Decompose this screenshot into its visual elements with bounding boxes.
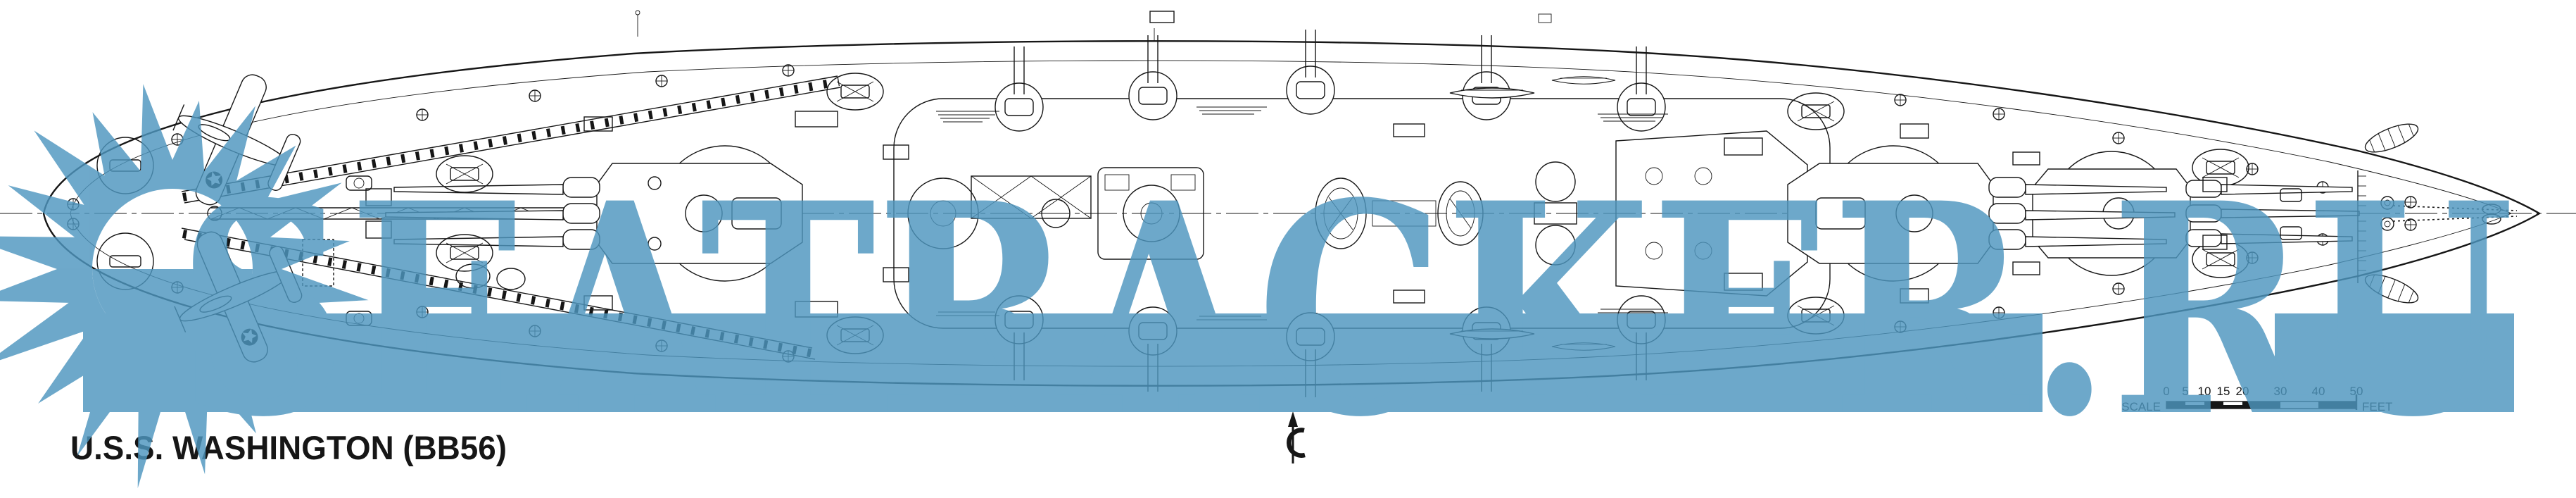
blueprint-page: SCALE 0 5 10 15 20 30 40 50 FEET U.S.S. … [0, 0, 2576, 498]
watermark-overlay: SEATRACKER.RU [0, 0, 2576, 498]
watermark-text: SEATRACKER.RU [177, 140, 2514, 481]
